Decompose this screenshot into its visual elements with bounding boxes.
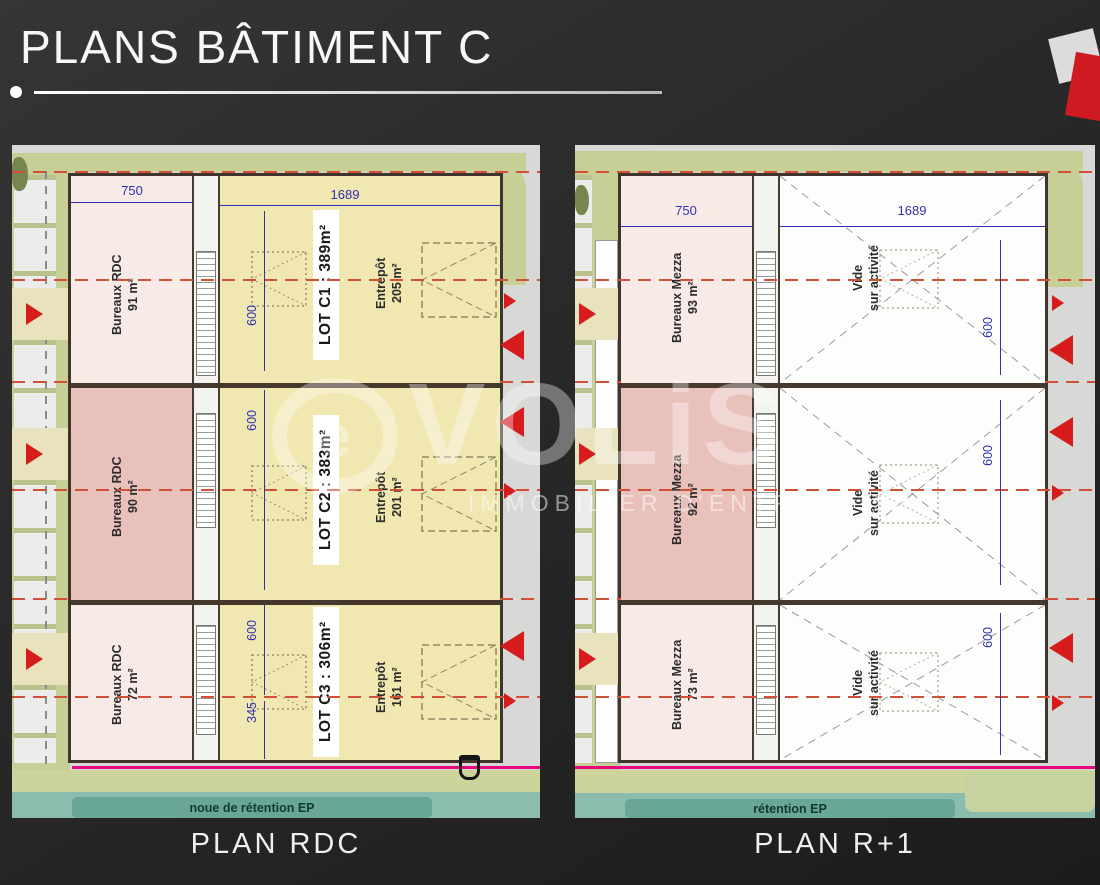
axis-dash-stub — [500, 598, 540, 600]
mezza-row-2: Bureaux Mezza92 m² Videsur activité — [621, 388, 1045, 600]
dim-line — [220, 205, 500, 206]
building-r1: Bureaux Mezza93 m² Videsur activité Bure… — [618, 173, 1048, 763]
staircase-icon — [756, 625, 776, 735]
dim-line — [621, 226, 752, 227]
staircase-icon — [196, 625, 216, 735]
door-arrow-icon — [1052, 485, 1064, 501]
bureau-label: Bureaux RDC91 m² — [109, 225, 141, 365]
green-block-overlay — [965, 772, 1095, 812]
lot-divider-wall — [71, 383, 500, 388]
lot-row-c2: Bureaux RDC90 m² LOT C2 : 383m² Entrepôt… — [71, 388, 500, 600]
retention-label: noue de rétention EP — [72, 797, 432, 818]
page-title: PLANS BÂTIMENT C — [20, 20, 493, 74]
entrance-arrow-icon — [26, 303, 43, 325]
bureau-label: Bureaux RDC72 m² — [109, 617, 141, 752]
gate-arrow-icon — [1049, 633, 1073, 663]
plan-rdc-caption: PLAN RDC — [12, 828, 540, 861]
axis-dash-line — [12, 696, 540, 698]
gate-arrow-icon — [500, 407, 524, 437]
parking-stalls — [14, 175, 56, 288]
stair-zone — [192, 605, 220, 760]
dim-600: 600 — [245, 305, 259, 326]
axis-dash-stub — [575, 381, 621, 383]
entrance-arrow-icon — [579, 303, 596, 325]
entrance-arrow-icon — [26, 648, 43, 670]
entrance-arrow-icon — [579, 648, 596, 670]
hydrant-icon — [459, 755, 480, 780]
axis-dash-line — [575, 489, 1095, 491]
door-swing-decor — [220, 388, 500, 600]
walkway — [575, 633, 621, 685]
dim-600: 600 — [981, 317, 995, 338]
staircase-icon — [196, 251, 216, 376]
staircase-icon — [756, 413, 776, 528]
vide-zone — [780, 605, 1045, 760]
entrance-arrow-icon — [579, 443, 596, 465]
door-arrow-icon — [504, 483, 516, 499]
vide-label: Videsur activité — [850, 433, 882, 573]
vide-label: Videsur activité — [850, 615, 882, 750]
axis-dash-stub — [1045, 381, 1095, 383]
entrance-arrow-icon — [26, 443, 43, 465]
dim-line-v — [264, 390, 265, 590]
parking-stalls — [575, 340, 592, 428]
dim-line-v — [264, 605, 265, 695]
dim-1689: 1689 — [877, 203, 947, 218]
dim-line-v — [1000, 240, 1001, 375]
dim-600: 600 — [981, 627, 995, 648]
door-arrow-icon — [1052, 695, 1064, 711]
bush-icon — [575, 185, 589, 215]
bush-icon — [12, 157, 28, 191]
dim-600: 600 — [245, 620, 259, 641]
parking-stalls — [575, 480, 592, 633]
vide-label: Videsur activité — [850, 208, 882, 348]
retention-label: rétention EP — [625, 799, 955, 818]
stair-zone — [752, 605, 780, 760]
axis-dash-line — [575, 171, 1095, 173]
walkway — [12, 633, 70, 685]
walkway — [12, 288, 70, 340]
axis-dash-line — [12, 171, 540, 173]
plan-r1-panel: Bureaux Mezza93 m² Videsur activité Bure… — [575, 145, 1095, 818]
door-arrow-icon — [1052, 295, 1064, 311]
axis-dash-line — [12, 489, 540, 491]
dim-line — [780, 226, 1045, 227]
gate-arrow-icon — [500, 631, 524, 661]
dim-line — [71, 202, 192, 203]
entrepot-zone — [220, 605, 500, 760]
title-underline — [34, 91, 662, 94]
parking-stalls — [14, 340, 56, 428]
lot-row-c3: Bureaux RDC72 m² LOT C3 : 306m² Entrepôt… — [71, 605, 500, 760]
gate-arrow-icon — [1049, 417, 1073, 447]
title-bullet-dot — [10, 86, 22, 98]
axis-dash-line — [575, 696, 1095, 698]
dim-line-v — [264, 211, 265, 371]
parking-stalls — [14, 480, 56, 633]
dim-750: 750 — [97, 183, 167, 198]
dim-line-v — [1000, 400, 1001, 585]
green-band-top — [12, 153, 526, 172]
cross-brace-decor — [780, 605, 1045, 760]
gate-arrow-icon — [1049, 335, 1073, 365]
entrepot-label: Entrepôt161 m² — [373, 627, 405, 747]
dim-750: 750 — [651, 203, 721, 218]
axis-dash-line — [575, 279, 1095, 281]
dim-600: 600 — [245, 410, 259, 431]
walkway — [12, 428, 70, 480]
door-arrow-icon — [504, 693, 516, 709]
dim-line-v — [264, 701, 265, 759]
dim-1689: 1689 — [310, 187, 380, 202]
door-arrow-icon — [504, 293, 516, 309]
plan-rdc-panel: Bureaux RDC91 m² LOT C1 : 389m² Entrepôt… — [12, 145, 540, 818]
door-swing-decor — [220, 605, 500, 760]
dim-345: 345 — [245, 702, 259, 723]
bureau-label: Bureaux Mezza93 m² — [669, 228, 701, 368]
axis-dash-stub — [12, 381, 71, 383]
lot-divider-wall — [71, 600, 500, 605]
lot-label: LOT C1 : 389m² — [313, 210, 339, 360]
entrepot-zone — [220, 388, 500, 600]
plan-r1-caption: PLAN R+1 — [575, 828, 1095, 861]
entrepot-label: Entrepôt201 m² — [373, 437, 405, 557]
bureau-label: Bureaux RDC90 m² — [109, 427, 141, 567]
building-rdc: Bureaux RDC91 m² LOT C1 : 389m² Entrepôt… — [68, 173, 503, 763]
vide-zone — [780, 388, 1045, 600]
walkway — [575, 288, 621, 340]
dim-line-v — [1000, 613, 1001, 755]
axis-dash-stub — [575, 598, 621, 600]
staircase-icon — [756, 251, 776, 376]
cross-brace-decor — [780, 388, 1045, 600]
green-band-top — [575, 151, 1083, 172]
entrepot-label: Entrepôt205 m² — [373, 223, 405, 343]
slide: { "header": { "title": "PLANS BÂTIMENT C… — [0, 0, 1100, 885]
bureau-label: Bureaux Mezza73 m² — [669, 617, 701, 752]
bureau-label: Bureaux Mezza92 m² — [669, 430, 701, 570]
property-limit-line — [575, 766, 1095, 769]
walkway — [575, 428, 621, 480]
lot-label: LOT C3 : 306m² — [313, 607, 339, 757]
axis-dash-stub — [12, 598, 71, 600]
axis-dash-stub — [1045, 598, 1095, 600]
axis-dash-line — [12, 279, 540, 281]
stair-zone — [192, 388, 220, 600]
stair-zone — [752, 388, 780, 600]
lot-divider-wall — [621, 383, 1045, 388]
gate-arrow-icon — [500, 330, 524, 360]
axis-dash-stub — [500, 381, 540, 383]
lot-divider-wall — [621, 600, 1045, 605]
dim-600: 600 — [981, 445, 995, 466]
staircase-icon — [196, 413, 216, 528]
